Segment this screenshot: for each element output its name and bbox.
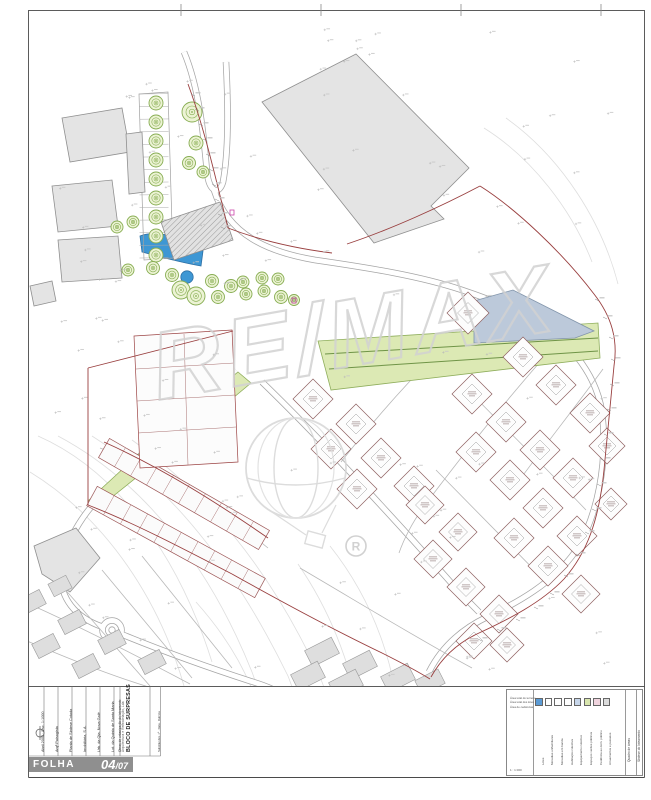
legend-swatch — [603, 698, 611, 706]
sheet-number: 04 /07 — [101, 757, 128, 772]
legend-item-label: Moradias unifamiliares — [551, 735, 555, 765]
svg-text:RE/MAX: RE/MAX — [143, 244, 565, 420]
svg-text:R: R — [352, 540, 361, 554]
title-block-field: Abril 2002 · Esc. 1:1000 — [41, 711, 46, 752]
folha-label: FOLHA — [33, 759, 75, 770]
legend-divider — [625, 690, 626, 775]
legend-item-label: Arruamentos e passeios — [609, 733, 613, 765]
drawing-title: BLOCO DE SURPRESAS — [126, 684, 132, 752]
legend-swatch — [584, 698, 592, 706]
legend-panel: Área total do terrenoÁrea total dos lote… — [506, 689, 643, 776]
title-block-field: Lot. da Quinta de Santa Maria — [111, 701, 116, 752]
legend-item-label: Habitação colectiva — [571, 739, 575, 765]
drawing-title-block: Arquitectura e Remodelação, Lda BLOCO DE… — [122, 684, 132, 752]
legend-item-label: Lotes — [542, 758, 546, 765]
legend-right-note: Quadro de áreas — [628, 738, 632, 762]
legend-area-summary: Área total do terrenoÁrea total dos lote… — [510, 696, 536, 709]
legend-item-label: Espaços verdes públicos — [590, 732, 594, 765]
plan-content: RE/MAXR — [18, 28, 627, 776]
legend-right-note: Síntese do loteamento — [638, 730, 642, 762]
legend-swatch — [535, 698, 543, 706]
drawing-sheet: RE/MAXR Arquitectura e Remodelação, Lda … — [0, 0, 651, 800]
sheet-number-main: 04 — [101, 757, 115, 772]
title-block-field: Imobiliária, S.A. — [83, 725, 88, 752]
legend-item-label: Moradias em banda — [561, 738, 565, 765]
sheet-number-suffix: /07 — [115, 761, 128, 771]
legend-swatch — [593, 698, 601, 706]
legend-swatch — [554, 698, 562, 706]
title-block-field: Arqª Paisagista — [55, 726, 60, 752]
title-block-field: Substitui des. nº · Data · Rubrica — [158, 711, 161, 752]
legend-scale-note: 1 : 1 000 — [510, 768, 522, 772]
legend-area-line: Área de cedências — [510, 705, 536, 709]
title-block-field: Urb. da Qta. Nova Galé — [97, 712, 102, 752]
site-plan-canvas: RE/MAXR — [0, 0, 651, 800]
legend-swatch — [574, 698, 582, 706]
legend-swatch — [545, 698, 553, 706]
legend-swatch — [564, 698, 572, 706]
legend-item-label: Equipamento colectivo — [580, 735, 584, 765]
title-block-field: Planta de Síntese Cotada — [69, 709, 74, 752]
legend-item-label: Cedência ao dom. público — [600, 730, 604, 765]
sheet-number-bar: FOLHA 04 /07 — [29, 757, 133, 772]
title-block-field: Obras de urbanização do loteamento — [119, 700, 123, 752]
